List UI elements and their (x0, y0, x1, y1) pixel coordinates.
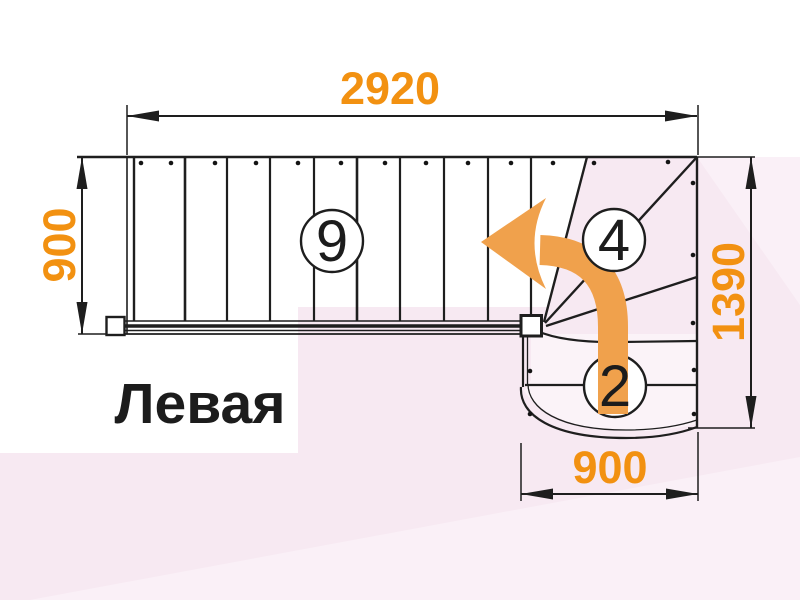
turn-arrow-head (481, 198, 546, 289)
dimension-right-value: 1390 (703, 242, 754, 342)
dim-arrow-up-icon (77, 157, 88, 189)
dimension-top-value: 2920 (340, 63, 440, 114)
dimension-bottom-value: 900 (572, 442, 647, 493)
step-count-winders: 4 (598, 208, 630, 273)
step-count-bottom-flight: 2 (599, 354, 631, 419)
plan-title: Левая (115, 372, 286, 436)
dimension-top: 2920 (127, 63, 698, 155)
dim-arrow-down-icon (77, 302, 88, 334)
step-count-main-flight: 9 (316, 209, 348, 274)
newel-post-left (107, 317, 125, 335)
dim-arrow-left-icon (127, 111, 159, 122)
plan-canvas: 2920 900 1390 900 9 4 2 Левая (0, 0, 800, 600)
staircase-plan-drawing: 2920 900 1390 900 9 4 2 Левая (0, 0, 800, 600)
dimension-left: 900 (34, 157, 107, 334)
dim-arrow-right-icon (665, 111, 697, 122)
dimension-left-value: 900 (34, 207, 85, 282)
newel-post-right (521, 316, 542, 337)
